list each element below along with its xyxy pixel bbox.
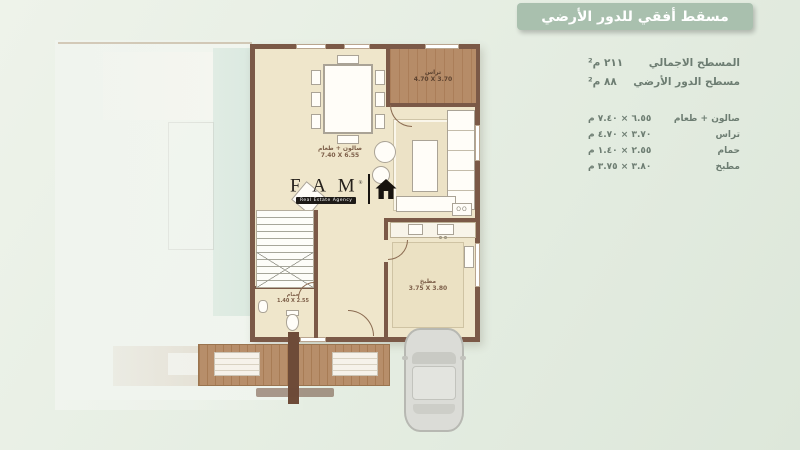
dining-chair bbox=[375, 70, 385, 85]
plot-fence-line bbox=[58, 42, 252, 44]
fam-logo-letters: F A M® bbox=[290, 174, 362, 195]
salon-label: صالون + طعام 7.40 X 6.55 bbox=[300, 145, 380, 159]
sofa bbox=[447, 110, 475, 210]
area-row-total: المسطح الاجمالي ٢١١ م² bbox=[588, 54, 740, 73]
salon-dimensions: 7.40 X 6.55 bbox=[300, 152, 380, 159]
dining-chair bbox=[375, 114, 385, 129]
window bbox=[300, 337, 326, 342]
car-windshield bbox=[412, 352, 456, 364]
window bbox=[475, 125, 480, 161]
staircase-cross-lines bbox=[256, 252, 314, 288]
pergola-beam-shadow bbox=[256, 388, 334, 397]
porch-planter bbox=[214, 352, 260, 376]
dining-chair bbox=[337, 55, 359, 64]
refrigerator bbox=[464, 246, 474, 268]
interior-wall-kitchen-left-lower bbox=[384, 262, 388, 338]
fam-logo-tagline: Real Estate Agency bbox=[296, 197, 357, 204]
interior-wall-stairs bbox=[314, 210, 318, 338]
car-mirror bbox=[402, 356, 408, 360]
terrace-label: تراس bbox=[425, 69, 441, 76]
info-panel: المسطح الاجمالي ٢١١ م² مسطح الدور الأرضي… bbox=[588, 54, 740, 175]
kitchen-label: مطبخ 3.75 X 3.80 bbox=[409, 278, 447, 292]
area-ground-value: ٨٨ م² bbox=[588, 73, 617, 92]
room-terrace-value: ٣.٧٠ × ٤.٧٠ م bbox=[588, 127, 651, 143]
toilet bbox=[286, 314, 299, 331]
coffee-table bbox=[412, 140, 438, 192]
dining-table bbox=[323, 64, 373, 134]
room-row-kitchen: مطبخ ٣.٨٠ × ٣.٧٥ م bbox=[588, 159, 740, 175]
room-salon-value: ٦.٥٥ × ٧.٤٠ م bbox=[588, 111, 651, 127]
kitchen-dimensions: 3.75 X 3.80 bbox=[409, 285, 447, 292]
dining-chair bbox=[375, 92, 385, 107]
room-row-terrace: تراس ٣.٧٠ × ٤.٧٠ م bbox=[588, 127, 740, 143]
fam-logo: F A M® Real Estate Agency bbox=[290, 168, 405, 210]
logo-divider bbox=[368, 174, 370, 204]
bathroom-sink bbox=[258, 300, 268, 313]
room-bath-label: حمام bbox=[718, 143, 741, 159]
room-row-salon: صالون + طعام ٦.٥٥ × ٧.٤٠ م bbox=[588, 111, 740, 127]
area-total-value: ٢١١ م² bbox=[588, 54, 623, 73]
car-mirror bbox=[460, 356, 466, 360]
dining-chair bbox=[311, 70, 321, 85]
window bbox=[425, 44, 459, 49]
room-terrace-label: تراس bbox=[716, 127, 740, 143]
fam-logo-text: F A M® Real Estate Agency bbox=[290, 174, 362, 203]
car-rear-window bbox=[413, 404, 455, 414]
area-ground-label: مسطح الدور الأرضي bbox=[633, 73, 740, 92]
room-salon-label: صالون + طعام bbox=[674, 111, 740, 127]
kitchen-room: مطبخ 3.75 X 3.80 bbox=[392, 242, 464, 328]
registered-mark: ® bbox=[359, 181, 363, 186]
car-top-view bbox=[404, 328, 464, 432]
page-title-banner: مسقط أفقي للدور الأرضي bbox=[517, 3, 753, 30]
window bbox=[296, 44, 326, 49]
terrace-dimensions: 4.70 X 3.70 bbox=[414, 76, 452, 83]
terrace-area: تراس 4.70 X 3.70 bbox=[386, 49, 476, 107]
kitchen-counter bbox=[390, 222, 476, 238]
kitchen-name: مطبخ bbox=[409, 278, 447, 285]
sofa-chaise bbox=[396, 196, 456, 212]
room-bath-value: ٢.٥٥ × ١.٤٠ م bbox=[588, 143, 651, 159]
area-summary: المسطح الاجمالي ٢١١ م² مسطح الدور الأرضي… bbox=[588, 54, 740, 92]
area-total-label: المسطح الاجمالي bbox=[649, 54, 740, 73]
page-title: مسقط أفقي للدور الأرضي bbox=[541, 9, 729, 25]
window bbox=[475, 243, 480, 287]
dining-chair bbox=[337, 135, 359, 144]
window bbox=[344, 44, 370, 49]
dining-chair bbox=[311, 114, 321, 129]
area-row-ground: مسطح الدور الأرضي ٨٨ م² bbox=[588, 73, 740, 92]
room-dimension-list: صالون + طعام ٦.٥٥ × ٧.٤٠ م تراس ٣.٧٠ × ٤… bbox=[588, 111, 740, 175]
bathroom-dimensions: 1.40 X 2.55 bbox=[268, 298, 318, 304]
tv-unit: OO bbox=[452, 203, 472, 216]
room-kitchen-value: ٣.٨٠ × ٣.٧٥ م bbox=[588, 159, 651, 175]
salon-name: صالون + طعام bbox=[300, 145, 380, 152]
car-roof bbox=[412, 366, 456, 400]
kitchen-stove bbox=[437, 224, 454, 235]
room-row-bath: حمام ٢.٥٥ × ١.٤٠ م bbox=[588, 143, 740, 159]
house-icon bbox=[374, 177, 398, 201]
kitchen-sink bbox=[408, 224, 423, 235]
dining-chair bbox=[311, 92, 321, 107]
room-kitchen-label: مطبخ bbox=[716, 159, 741, 175]
porch-planter bbox=[332, 352, 378, 376]
